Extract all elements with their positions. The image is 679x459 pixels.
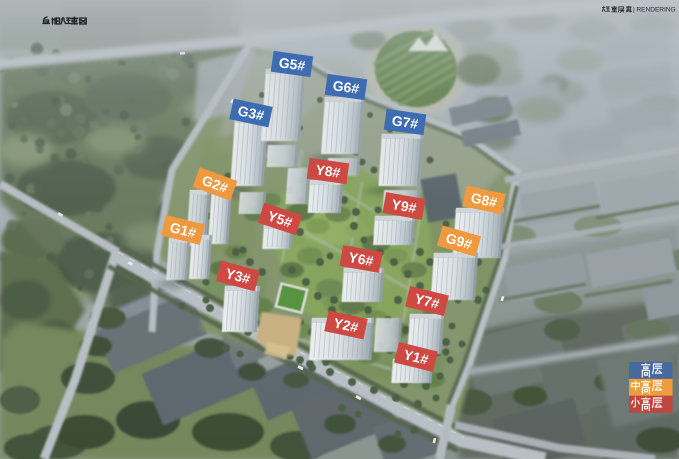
svg-text:| RENDERING: | RENDERING [633, 7, 676, 14]
